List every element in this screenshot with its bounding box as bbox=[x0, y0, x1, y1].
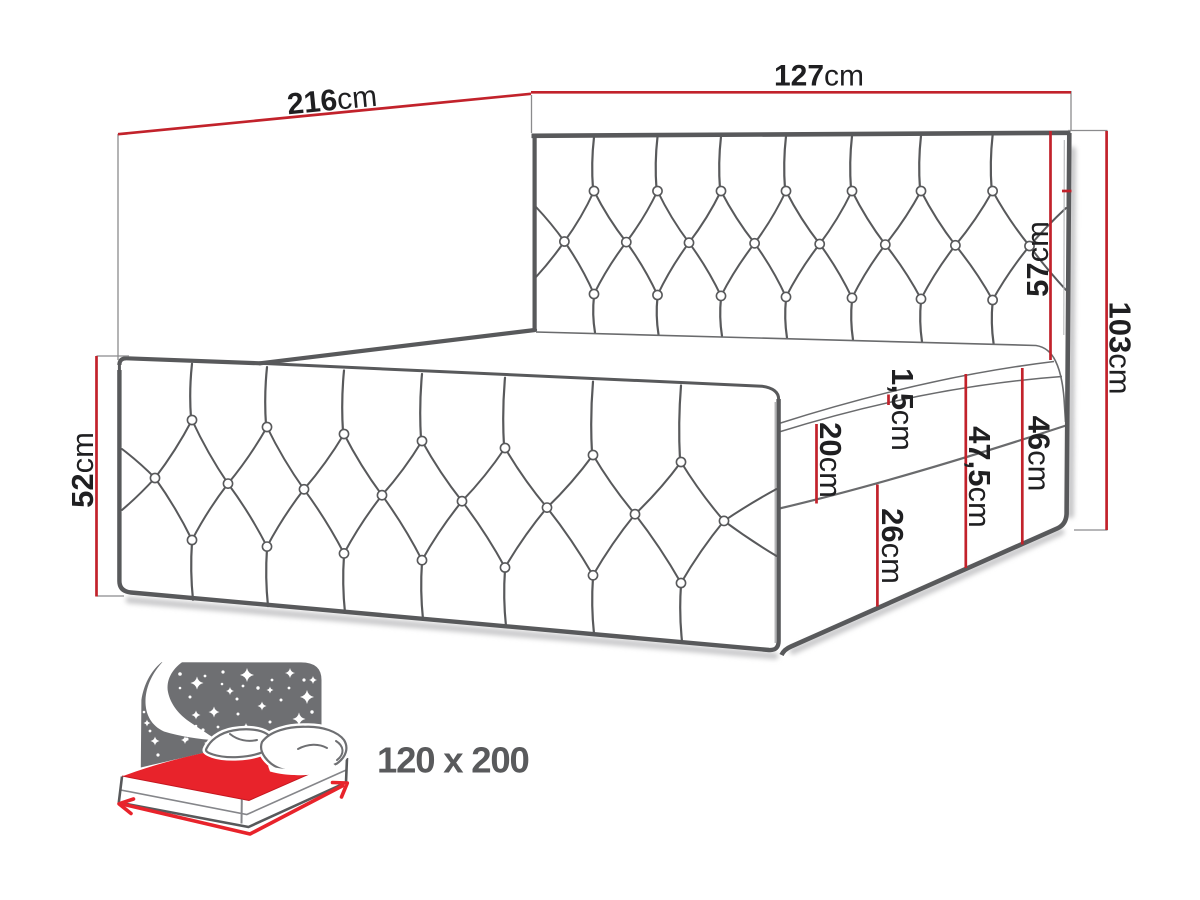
svg-text:26cm: 26cm bbox=[875, 508, 910, 584]
svg-text:120 x 200: 120 x 200 bbox=[377, 740, 529, 781]
svg-text:46cm: 46cm bbox=[1022, 416, 1057, 492]
svg-text:127cm: 127cm bbox=[774, 60, 864, 93]
svg-text:47,5cm: 47,5cm bbox=[962, 426, 997, 528]
svg-text:52cm: 52cm bbox=[65, 432, 100, 508]
svg-text:57cm: 57cm bbox=[1020, 221, 1055, 297]
svg-text:103cm: 103cm bbox=[1103, 301, 1138, 394]
svg-text:20cm: 20cm bbox=[813, 422, 848, 498]
svg-text:1,5cm: 1,5cm bbox=[885, 368, 920, 451]
